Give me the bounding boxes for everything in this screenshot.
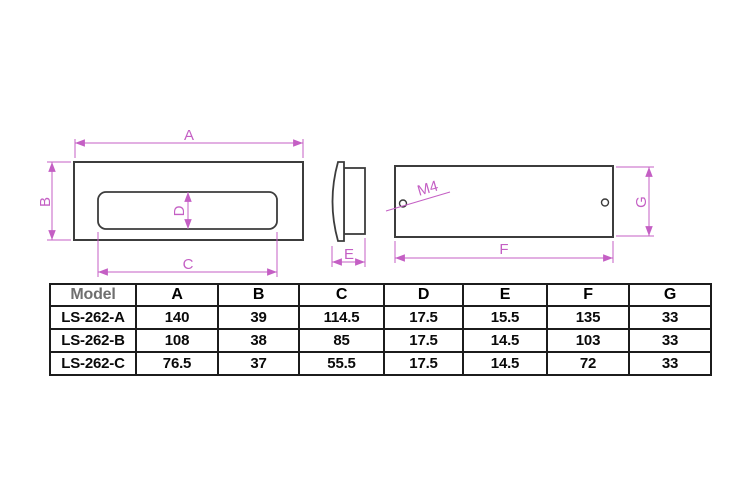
table-row: LS-262-A 140 39 114.5 17.5 15.5 135 33 (50, 306, 711, 329)
table-row: LS-262-C 76.5 37 55.5 17.5 14.5 72 33 (50, 352, 711, 375)
dim-f-label: F (499, 241, 508, 258)
cell: 135 (547, 306, 629, 329)
table-header-row: Model A B C D E F G (50, 284, 711, 306)
cell: 114.5 (299, 306, 384, 329)
cell: 37 (218, 352, 299, 375)
dim-c-label: C (183, 256, 194, 273)
header-cell-a: A (136, 284, 218, 306)
table-row: LS-262-B 108 38 85 17.5 14.5 103 33 (50, 329, 711, 352)
header-cell-model: Model (50, 284, 136, 306)
cell: 33 (629, 306, 711, 329)
technical-drawing: A B D C E M4 F G (0, 0, 750, 282)
dim-a-label: A (184, 127, 194, 144)
dim-e-label: E (344, 246, 354, 263)
side-view-body-outline (344, 168, 365, 234)
cell-model: LS-262-C (50, 352, 136, 375)
screw-hole-right (602, 199, 609, 206)
header-cell-f: F (547, 284, 629, 306)
cell: 76.5 (136, 352, 218, 375)
cell: 55.5 (299, 352, 384, 375)
header-cell-e: E (463, 284, 547, 306)
page: A B D C E M4 F G (0, 0, 750, 500)
cell: 85 (299, 329, 384, 352)
cell: 140 (136, 306, 218, 329)
header-cell-d: D (384, 284, 463, 306)
cell-model: LS-262-A (50, 306, 136, 329)
header-cell-c: C (299, 284, 384, 306)
cell: 33 (629, 329, 711, 352)
cell-model: LS-262-B (50, 329, 136, 352)
back-view-outline (395, 166, 613, 237)
cell: 38 (218, 329, 299, 352)
dimension-table: Model A B C D E F G LS-262-A 140 39 114.… (49, 283, 712, 376)
cell: 17.5 (384, 306, 463, 329)
cell: 108 (136, 329, 218, 352)
dim-b-label: B (37, 197, 54, 207)
cell: 72 (547, 352, 629, 375)
cell: 14.5 (463, 329, 547, 352)
cell: 14.5 (463, 352, 547, 375)
dim-d-label: D (171, 205, 188, 216)
cell: 33 (629, 352, 711, 375)
dim-g-label: G (633, 196, 650, 208)
cell: 15.5 (463, 306, 547, 329)
cell: 103 (547, 329, 629, 352)
cell: 39 (218, 306, 299, 329)
header-cell-b: B (218, 284, 299, 306)
cell: 17.5 (384, 329, 463, 352)
header-cell-g: G (629, 284, 711, 306)
side-view-flange-outline (333, 162, 345, 241)
cell: 17.5 (384, 352, 463, 375)
